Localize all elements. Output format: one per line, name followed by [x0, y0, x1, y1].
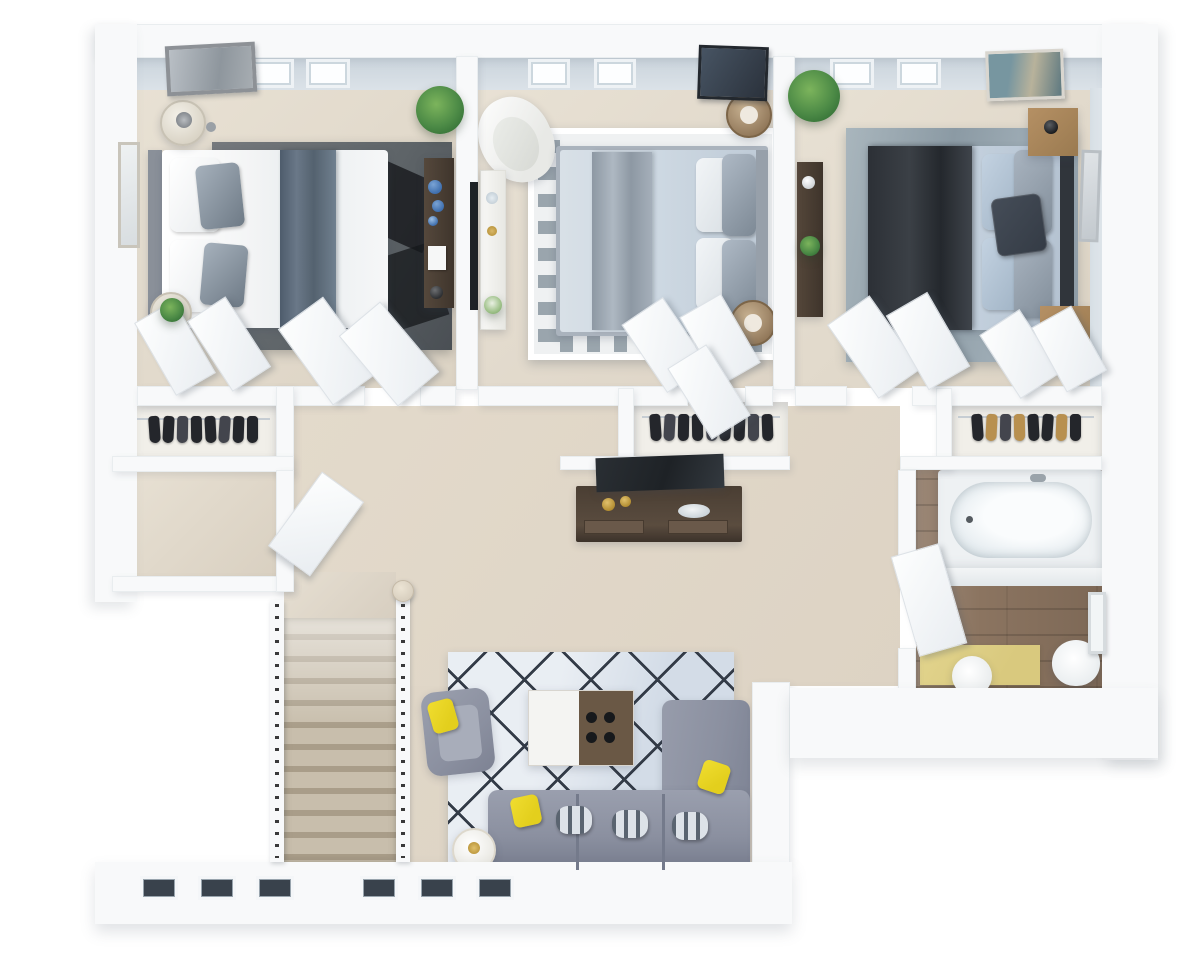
- balusters: [275, 604, 279, 858]
- hanging-garment: [748, 414, 759, 441]
- stair-railing-right: [396, 588, 410, 862]
- outer-wall-left: [95, 24, 137, 602]
- hanging-garment: [677, 414, 688, 441]
- hanging-garment: [247, 416, 258, 443]
- stair-railing-left: [270, 600, 284, 862]
- coffee-table: [528, 690, 634, 766]
- hanging-garment: [1055, 414, 1067, 441]
- floor-plan: [0, 0, 1200, 960]
- hanging-garment: [1041, 414, 1054, 442]
- window: [256, 876, 294, 900]
- dark-vase: [430, 286, 443, 299]
- blue-vase: [428, 216, 438, 226]
- black-lamp: [1044, 120, 1058, 134]
- bed2-south-wall-stub: [745, 386, 773, 406]
- closet-left-south-wall: [112, 456, 294, 472]
- bed2-south-wall: [478, 386, 688, 406]
- balusters: [401, 592, 405, 858]
- window: [198, 876, 236, 900]
- potted-plant-small: [160, 298, 184, 322]
- hanging-garment: [162, 416, 174, 444]
- window: [594, 59, 636, 88]
- blue-vase: [432, 200, 444, 212]
- drum-table-tray: [740, 106, 758, 124]
- pendant-decor: [206, 122, 216, 132]
- media-console-drawer: [584, 520, 644, 534]
- framed-wall-art-teal: [985, 49, 1065, 102]
- hanging-garment: [218, 416, 231, 444]
- window: [418, 876, 456, 900]
- potted-plant: [788, 70, 840, 122]
- bed-pillow-gray: [195, 162, 245, 230]
- table-knob: [586, 732, 597, 743]
- sofa-cushion-seam: [662, 794, 665, 870]
- wall-tv: [470, 182, 478, 310]
- framed-wall-art: [165, 42, 257, 97]
- bathtub-faucet: [1030, 474, 1046, 482]
- gold-vase: [620, 496, 631, 507]
- bed-runner-throw: [280, 150, 336, 328]
- hanging-garment: [232, 416, 244, 443]
- living-east-wall: [752, 682, 790, 866]
- bed-headboard: [1060, 146, 1074, 332]
- stair-flight: [284, 618, 396, 862]
- storage-room-floor: [120, 470, 276, 578]
- bathroom-north-wall: [900, 456, 1102, 470]
- tv-flatscreen: [595, 454, 724, 492]
- hanging-garment: [190, 416, 201, 443]
- window: [306, 59, 350, 88]
- bathroom-west-wall-upper: [898, 470, 916, 560]
- vase-flowers: [484, 296, 502, 314]
- window: [897, 59, 941, 88]
- gold-cup: [468, 842, 480, 854]
- table-knob: [604, 712, 615, 723]
- bathtub-drain: [966, 516, 973, 523]
- window: [140, 876, 178, 900]
- bathroom-west-wall-lower: [898, 648, 916, 692]
- table-lamp: [176, 112, 192, 128]
- bed-runner-silver: [592, 152, 652, 330]
- table-knob: [586, 712, 597, 723]
- hanging-garment: [1013, 414, 1024, 441]
- desk-plant: [800, 236, 820, 256]
- pillow-patterned: [612, 810, 648, 838]
- soccer-ball-decor: [802, 176, 815, 189]
- window: [360, 876, 398, 900]
- hanging-garment: [148, 416, 161, 444]
- closet-left-garments: [136, 408, 270, 452]
- blue-vase: [428, 180, 442, 194]
- pillow-patterned: [556, 806, 592, 834]
- pillow-patterned: [672, 812, 708, 840]
- outer-wall-right: [1102, 24, 1158, 760]
- hanging-garment: [649, 414, 662, 442]
- stair-landing: [284, 572, 396, 618]
- hanging-garment: [985, 414, 997, 442]
- window: [528, 59, 570, 88]
- hanging-garment: [971, 414, 984, 442]
- bed3-south-wall-stub: [795, 386, 847, 406]
- wall-mirror: [118, 142, 140, 248]
- gold-vase: [602, 498, 615, 511]
- media-console-drawer: [668, 520, 728, 534]
- hanging-garment: [761, 414, 773, 441]
- decor-bowl: [678, 504, 710, 518]
- white-card-decor: [428, 246, 446, 270]
- wall-cabinet-mirror: [1088, 592, 1106, 654]
- newel-post: [392, 580, 414, 602]
- hanging-garment: [1027, 414, 1039, 442]
- potted-plant: [416, 86, 464, 134]
- hanging-garment: [1070, 414, 1081, 441]
- bed-accent-pillow: [990, 193, 1048, 257]
- hanging-garment: [999, 414, 1010, 441]
- table-knob: [604, 732, 615, 743]
- closet-right-garments: [958, 406, 1094, 450]
- bed1-south-wall-stub: [420, 386, 456, 406]
- window: [476, 876, 514, 900]
- hanging-garment: [204, 416, 216, 444]
- storage-south-wall: [112, 576, 294, 592]
- bed-pillow-silk: [722, 154, 756, 236]
- bathtub-apron: [938, 568, 1104, 586]
- pillow-yellow: [509, 793, 543, 828]
- drum-table-tray: [744, 314, 762, 332]
- outer-wall-bottom-right-step: [790, 688, 1158, 758]
- hanging-garment: [663, 414, 675, 442]
- framed-wall-art-side: [1078, 150, 1101, 243]
- framed-wall-art-dark: [697, 45, 769, 101]
- hanging-garment: [176, 416, 187, 443]
- glass-decor: [486, 192, 498, 204]
- gold-cup: [487, 226, 497, 236]
